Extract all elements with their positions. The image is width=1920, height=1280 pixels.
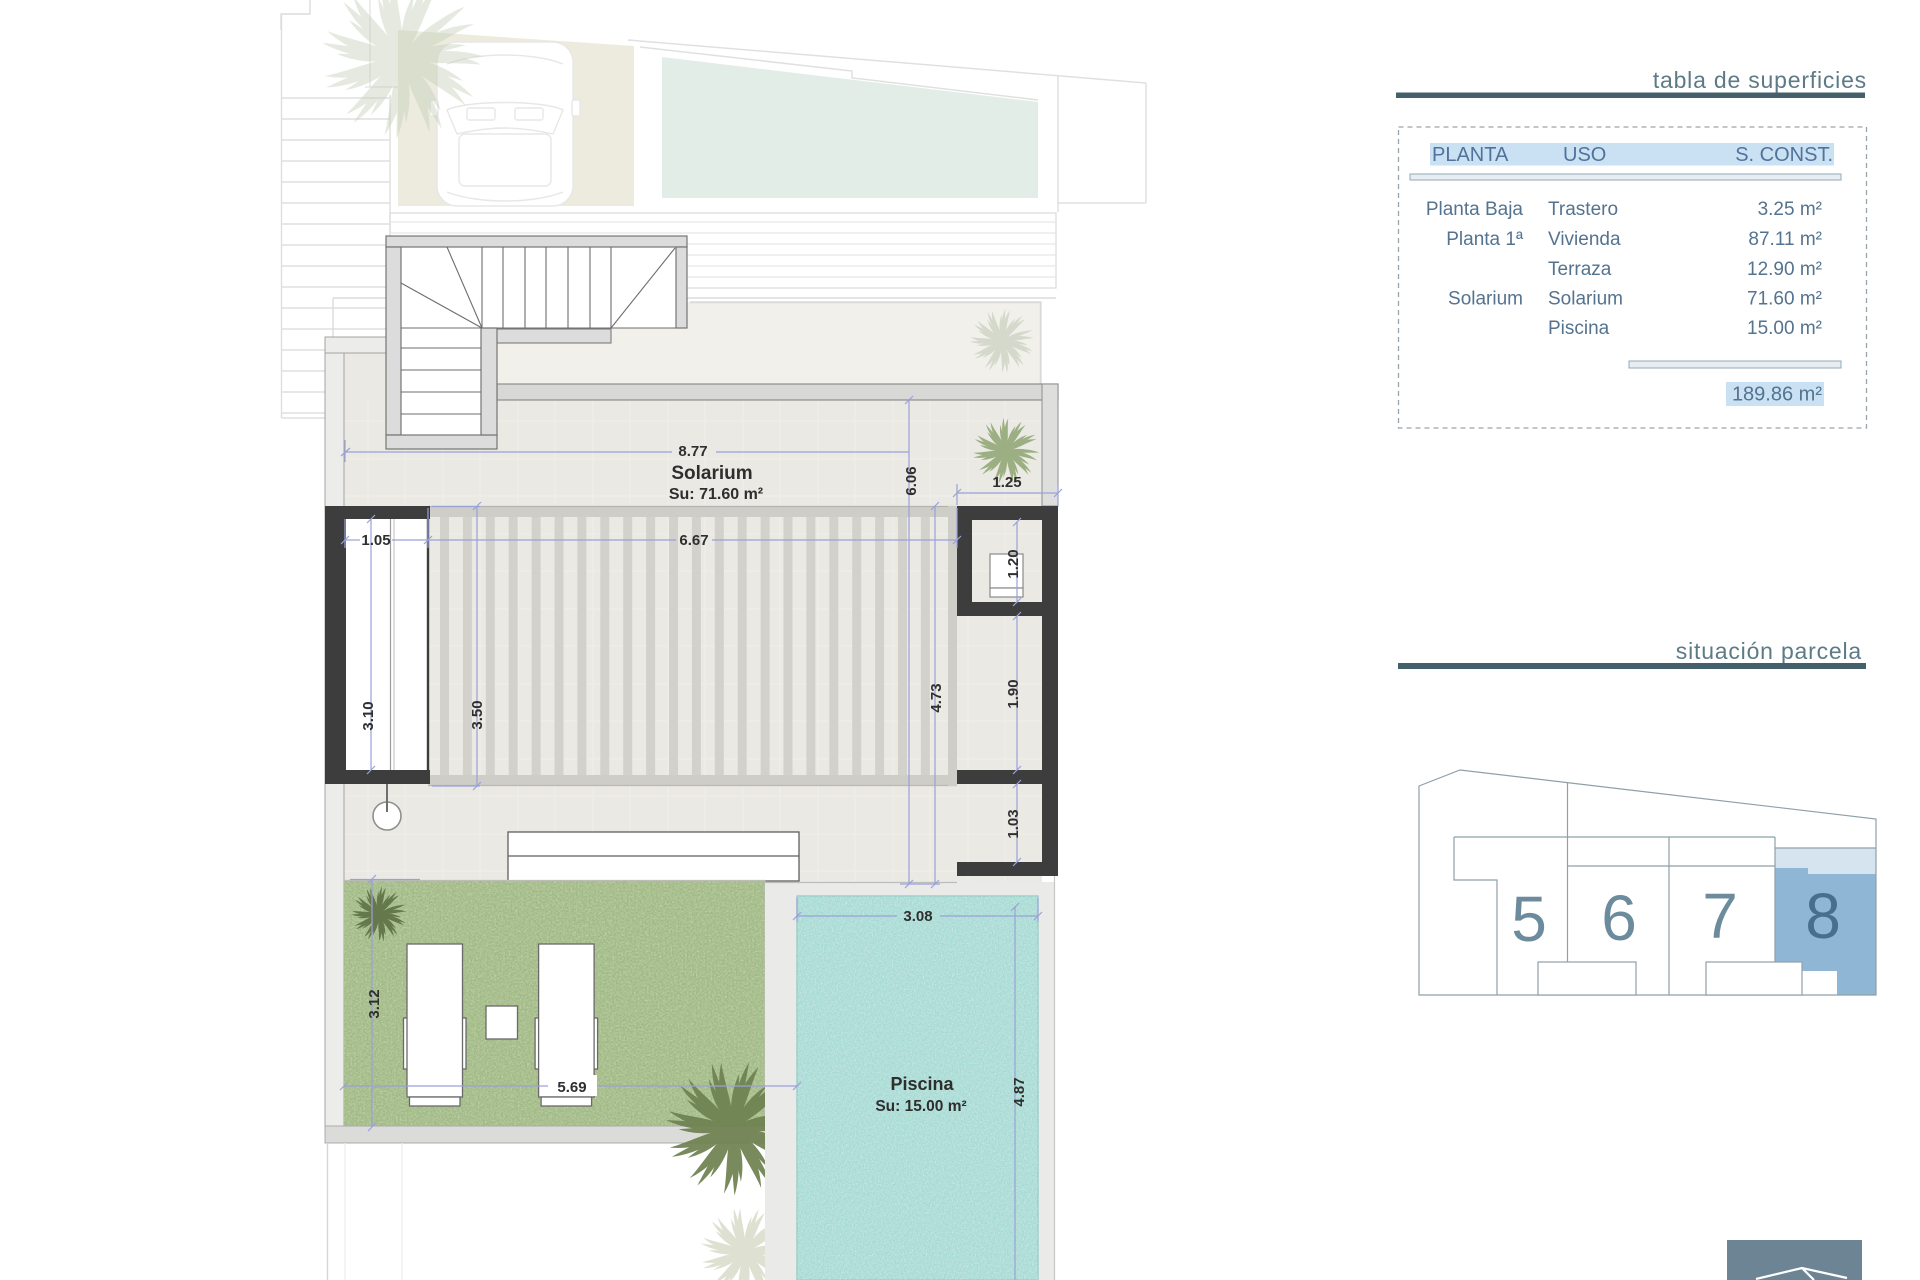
svg-text:situación parcela: situación parcela — [1676, 638, 1862, 664]
svg-text:189.86 m²: 189.86 m² — [1732, 384, 1822, 406]
svg-text:Su: 15.00 m²: Su: 15.00 m² — [875, 1098, 966, 1115]
svg-text:3.12: 3.12 — [366, 989, 383, 1018]
svg-text:Solarium: Solarium — [1448, 289, 1523, 310]
svg-text:1.03: 1.03 — [1005, 809, 1022, 838]
svg-text:Solarium: Solarium — [1548, 289, 1623, 310]
svg-text:3.10: 3.10 — [360, 701, 377, 730]
svg-text:Trastero: Trastero — [1548, 199, 1618, 220]
svg-text:1.05: 1.05 — [361, 532, 390, 549]
svg-text:S. CONST.: S. CONST. — [1735, 144, 1833, 166]
svg-text:5: 5 — [1511, 883, 1547, 955]
svg-text:1.90: 1.90 — [1005, 679, 1022, 708]
svg-text:Planta 1ª: Planta 1ª — [1446, 229, 1524, 250]
svg-text:Vivienda: Vivienda — [1548, 229, 1621, 250]
svg-text:4.73: 4.73 — [928, 683, 945, 712]
svg-text:8: 8 — [1805, 880, 1841, 952]
svg-text:8.77: 8.77 — [678, 443, 707, 460]
svg-text:87.11 m²: 87.11 m² — [1748, 229, 1822, 250]
svg-text:PLANTA: PLANTA — [1432, 144, 1509, 166]
svg-text:6: 6 — [1601, 882, 1637, 954]
svg-text:6.67: 6.67 — [679, 532, 708, 549]
svg-text:Terraza: Terraza — [1548, 259, 1612, 280]
svg-text:1.20: 1.20 — [1005, 549, 1022, 578]
svg-text:Su: 71.60 m²: Su: 71.60 m² — [669, 486, 763, 503]
svg-text:12.90 m²: 12.90 m² — [1747, 259, 1822, 280]
svg-text:1.25: 1.25 — [992, 474, 1021, 491]
svg-text:Piscina: Piscina — [1548, 318, 1610, 339]
svg-text:tabla de superficies: tabla de superficies — [1653, 67, 1867, 93]
svg-text:71.60 m²: 71.60 m² — [1747, 289, 1822, 310]
svg-text:7: 7 — [1702, 880, 1738, 952]
svg-text:4.87: 4.87 — [1011, 1077, 1028, 1106]
svg-text:5.69: 5.69 — [557, 1079, 586, 1096]
svg-text:3.50: 3.50 — [469, 700, 486, 729]
svg-text:6.06: 6.06 — [903, 466, 920, 495]
svg-text:Solarium: Solarium — [671, 463, 752, 484]
svg-text:3.25 m²: 3.25 m² — [1758, 199, 1822, 220]
svg-text:USO: USO — [1563, 144, 1606, 166]
svg-text:15.00 m²: 15.00 m² — [1747, 318, 1822, 339]
svg-text:3.08: 3.08 — [903, 908, 932, 925]
svg-text:Piscina: Piscina — [890, 1074, 954, 1094]
svg-text:Planta Baja: Planta Baja — [1426, 199, 1524, 220]
